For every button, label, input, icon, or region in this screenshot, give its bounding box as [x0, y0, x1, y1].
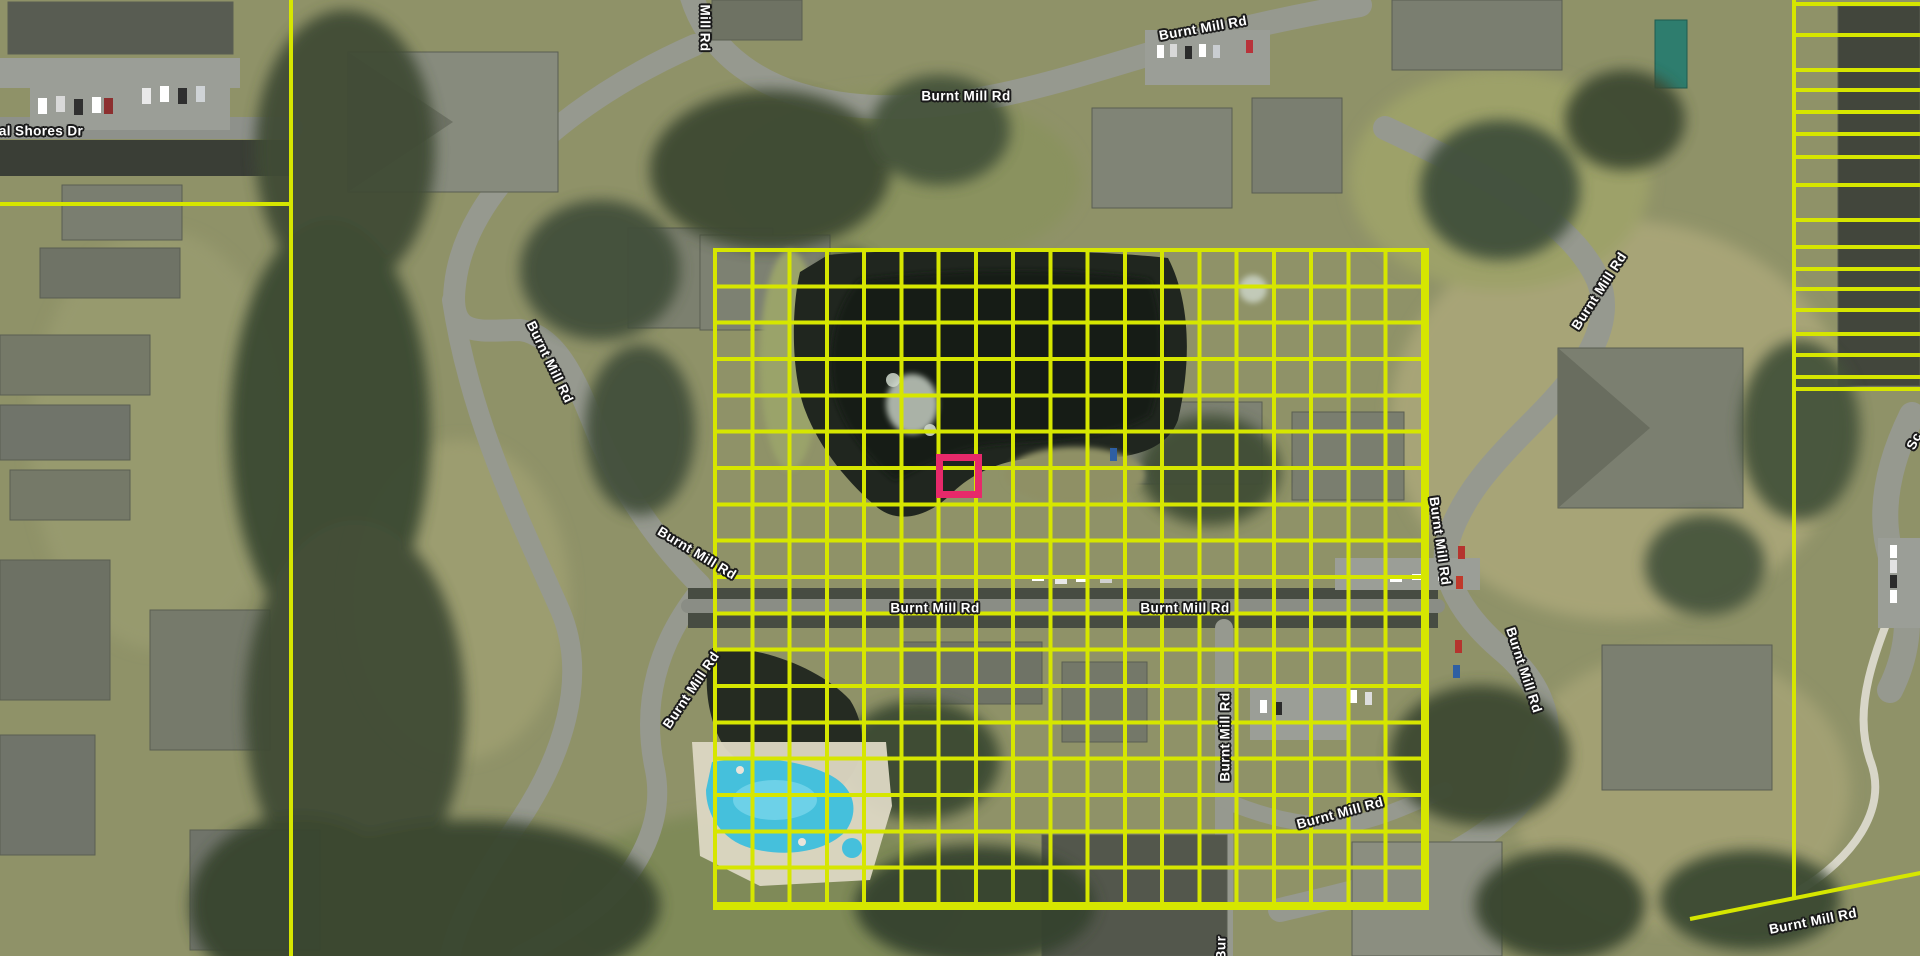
street-label: Burnt Mill Rd	[1218, 692, 1233, 781]
parcel-line	[289, 0, 293, 956]
parcel-line	[1792, 88, 1920, 92]
dumpster	[1655, 20, 1687, 88]
street-label: Burnt Mill Rd	[890, 601, 979, 616]
parcel-line	[1792, 245, 1920, 249]
parcel-line	[1792, 183, 1920, 187]
parcel-line	[1792, 287, 1920, 291]
parcel-line	[1792, 68, 1920, 72]
street-label: Mill Rd	[698, 4, 713, 51]
parcel-line	[1792, 132, 1920, 136]
parcel-line	[1792, 387, 1920, 391]
street-label: al Shores Dr	[0, 124, 83, 139]
parcel-line	[0, 202, 293, 206]
street-label: Burnt Mill Rd	[1140, 601, 1229, 616]
parcel-line	[1792, 110, 1920, 114]
parcel-line	[1792, 308, 1920, 312]
parcel-line	[1792, 353, 1920, 357]
street-label: Bur	[1214, 936, 1229, 956]
parcel-line	[1792, 332, 1920, 336]
parcel-line	[1792, 33, 1920, 37]
parcel-line	[1792, 2, 1920, 6]
highlighted-cell[interactable]	[936, 454, 982, 498]
parcel-line	[1792, 267, 1920, 271]
parcel-line	[1792, 218, 1920, 222]
map-canvas[interactable]: al Shores DrMill RdBurnt Mill RdBurnt Mi…	[0, 0, 1920, 956]
street-label: Burnt Mill Rd	[921, 89, 1010, 104]
parcel-line	[1792, 155, 1920, 159]
parcel-line	[1792, 375, 1920, 379]
